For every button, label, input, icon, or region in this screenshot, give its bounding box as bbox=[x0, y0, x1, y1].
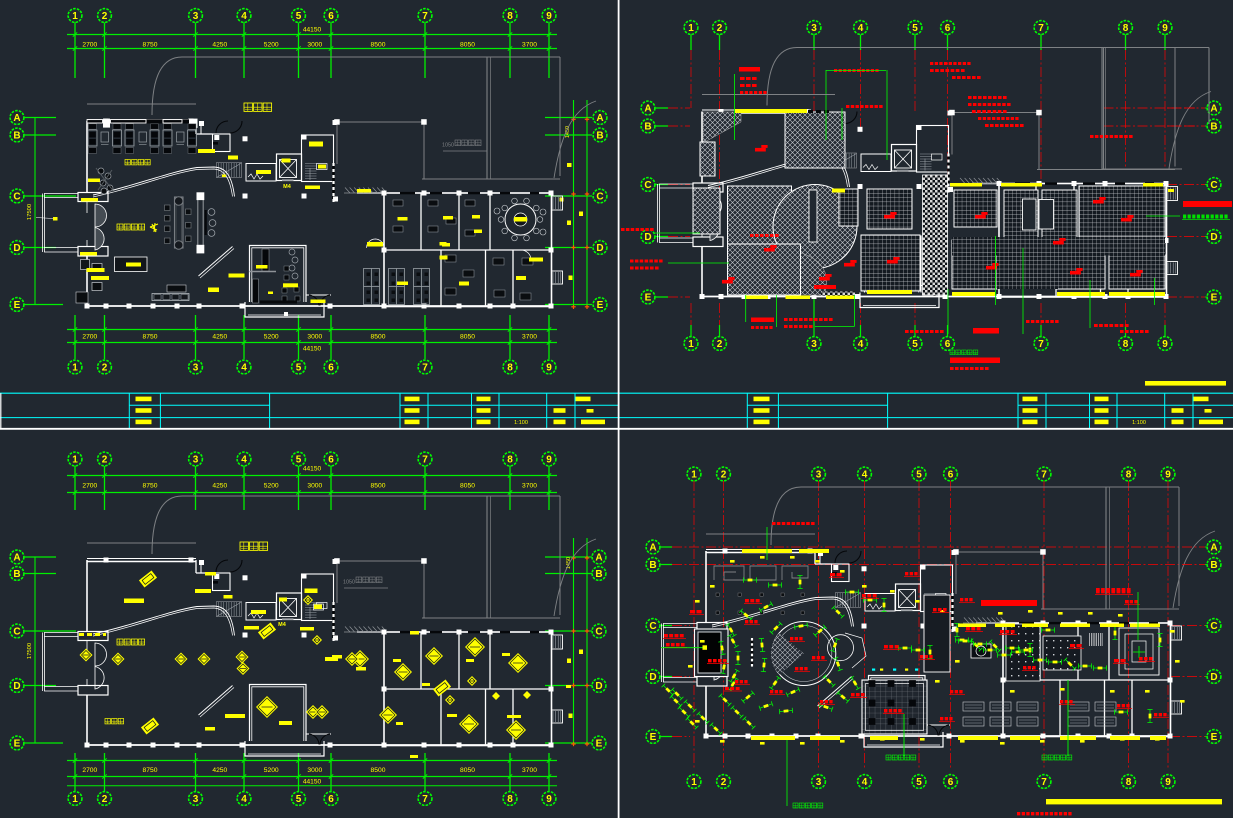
svg-text:D: D bbox=[1210, 232, 1217, 243]
svg-text:5200: 5200 bbox=[264, 483, 279, 490]
svg-text:C: C bbox=[595, 626, 602, 637]
svg-text:2: 2 bbox=[717, 23, 723, 34]
svg-text:B: B bbox=[596, 130, 603, 141]
svg-text:1: 1 bbox=[688, 23, 694, 34]
svg-text:A: A bbox=[13, 113, 20, 124]
svg-text:3: 3 bbox=[811, 339, 817, 350]
svg-text:B: B bbox=[1210, 121, 1217, 132]
svg-text:5: 5 bbox=[296, 11, 302, 22]
svg-text:7: 7 bbox=[1038, 23, 1044, 34]
svg-text:5: 5 bbox=[916, 777, 922, 788]
svg-text:7: 7 bbox=[422, 454, 428, 465]
svg-text:5200: 5200 bbox=[264, 767, 279, 774]
svg-text:8500: 8500 bbox=[371, 334, 386, 341]
svg-text:9: 9 bbox=[546, 11, 552, 22]
svg-text:3: 3 bbox=[193, 11, 199, 22]
svg-text:7: 7 bbox=[1041, 777, 1047, 788]
svg-text:D: D bbox=[595, 681, 602, 692]
svg-text:3700: 3700 bbox=[522, 767, 537, 774]
svg-text:4250: 4250 bbox=[212, 483, 227, 490]
svg-text:3: 3 bbox=[193, 454, 199, 465]
svg-text:E: E bbox=[14, 738, 21, 749]
svg-text:5: 5 bbox=[296, 454, 302, 465]
svg-text:B: B bbox=[595, 569, 602, 580]
svg-text:6: 6 bbox=[945, 339, 951, 350]
svg-text:E: E bbox=[645, 292, 652, 303]
svg-text:1: 1 bbox=[688, 339, 694, 350]
svg-text:A: A bbox=[13, 552, 20, 563]
svg-text:E: E bbox=[1211, 292, 1218, 303]
svg-text:9: 9 bbox=[1162, 339, 1168, 350]
svg-text:2: 2 bbox=[721, 777, 727, 788]
svg-text:C: C bbox=[1210, 621, 1217, 632]
svg-text:17500: 17500 bbox=[27, 204, 33, 220]
svg-text:7: 7 bbox=[422, 11, 428, 22]
svg-text:44150: 44150 bbox=[303, 466, 322, 473]
svg-text:5200: 5200 bbox=[264, 42, 279, 49]
svg-text:3000: 3000 bbox=[307, 42, 322, 49]
svg-text:D: D bbox=[644, 232, 651, 243]
svg-text:C: C bbox=[1210, 180, 1217, 191]
svg-text:A: A bbox=[596, 113, 603, 124]
svg-text:3: 3 bbox=[816, 469, 822, 480]
svg-text:5200: 5200 bbox=[264, 334, 279, 341]
svg-text:8750: 8750 bbox=[143, 334, 158, 341]
svg-text:A: A bbox=[649, 542, 656, 553]
svg-text:B: B bbox=[1210, 560, 1217, 571]
svg-text:8: 8 bbox=[1126, 469, 1132, 480]
svg-text:2700: 2700 bbox=[82, 483, 97, 490]
svg-text:C: C bbox=[649, 621, 656, 632]
svg-text:M4: M4 bbox=[278, 622, 287, 628]
svg-text:3: 3 bbox=[816, 777, 822, 788]
svg-text:E: E bbox=[14, 300, 21, 311]
svg-text:44150: 44150 bbox=[303, 346, 322, 353]
svg-text:6: 6 bbox=[948, 777, 954, 788]
svg-text:6: 6 bbox=[328, 794, 334, 805]
svg-text:1: 1 bbox=[72, 362, 78, 373]
svg-text:2: 2 bbox=[102, 11, 108, 22]
svg-text:4: 4 bbox=[858, 339, 864, 350]
svg-text:8500: 8500 bbox=[371, 767, 386, 774]
svg-text:E: E bbox=[650, 732, 657, 743]
svg-text:4: 4 bbox=[241, 362, 247, 373]
svg-text:2: 2 bbox=[102, 362, 108, 373]
svg-text:3000: 3000 bbox=[307, 483, 322, 490]
svg-text:2700: 2700 bbox=[82, 334, 97, 341]
svg-text:D: D bbox=[13, 681, 20, 692]
svg-text:6: 6 bbox=[328, 454, 334, 465]
svg-text:4: 4 bbox=[241, 11, 247, 22]
svg-text:3: 3 bbox=[193, 362, 199, 373]
svg-text:1: 1 bbox=[691, 469, 697, 480]
svg-text:C: C bbox=[596, 191, 603, 202]
svg-text:B: B bbox=[13, 569, 20, 580]
svg-text:1: 1 bbox=[72, 794, 78, 805]
svg-text:9: 9 bbox=[1162, 23, 1168, 34]
svg-text:E: E bbox=[1211, 732, 1218, 743]
svg-text:E: E bbox=[597, 300, 604, 311]
svg-text:1:100: 1:100 bbox=[1132, 420, 1146, 426]
svg-text:A: A bbox=[595, 552, 602, 563]
svg-text:C: C bbox=[13, 191, 20, 202]
svg-text:44150: 44150 bbox=[303, 27, 322, 34]
svg-text:4250: 4250 bbox=[212, 767, 227, 774]
svg-text:6: 6 bbox=[328, 362, 334, 373]
svg-text:4: 4 bbox=[862, 469, 868, 480]
svg-text:8750: 8750 bbox=[143, 767, 158, 774]
svg-text:4250: 4250 bbox=[212, 334, 227, 341]
svg-text:3000: 3000 bbox=[307, 334, 322, 341]
svg-text:7: 7 bbox=[422, 362, 428, 373]
svg-text:6: 6 bbox=[945, 23, 951, 34]
svg-text:8: 8 bbox=[507, 362, 513, 373]
svg-text:A: A bbox=[644, 103, 651, 114]
svg-text:2: 2 bbox=[102, 794, 108, 805]
svg-text:M4: M4 bbox=[283, 184, 292, 190]
svg-text:2: 2 bbox=[102, 454, 108, 465]
svg-text:3: 3 bbox=[193, 794, 199, 805]
svg-text:8500: 8500 bbox=[371, 483, 386, 490]
svg-text:8050: 8050 bbox=[460, 334, 475, 341]
svg-text:3700: 3700 bbox=[522, 334, 537, 341]
svg-text:9: 9 bbox=[1165, 469, 1171, 480]
svg-text:8050: 8050 bbox=[460, 42, 475, 49]
svg-text:9: 9 bbox=[546, 362, 552, 373]
svg-text:1:100: 1:100 bbox=[514, 420, 528, 426]
svg-text:1050: 1050 bbox=[442, 143, 454, 149]
svg-text:D: D bbox=[13, 243, 20, 254]
svg-text:1: 1 bbox=[72, 454, 78, 465]
svg-text:D: D bbox=[649, 672, 656, 683]
svg-text:4: 4 bbox=[241, 794, 247, 805]
svg-text:3000: 3000 bbox=[307, 767, 322, 774]
svg-text:3700: 3700 bbox=[522, 483, 537, 490]
svg-text:4: 4 bbox=[241, 454, 247, 465]
svg-text:7: 7 bbox=[1041, 469, 1047, 480]
svg-text:9: 9 bbox=[1165, 777, 1171, 788]
svg-text:A: A bbox=[1210, 542, 1217, 553]
svg-text:1: 1 bbox=[691, 777, 697, 788]
svg-text:5: 5 bbox=[916, 469, 922, 480]
svg-text:8: 8 bbox=[1126, 777, 1132, 788]
svg-text:5: 5 bbox=[912, 23, 918, 34]
svg-text:8: 8 bbox=[1123, 339, 1129, 350]
svg-text:6: 6 bbox=[328, 11, 334, 22]
svg-text:8050: 8050 bbox=[460, 483, 475, 490]
svg-text:8500: 8500 bbox=[371, 42, 386, 49]
svg-text:D: D bbox=[596, 243, 603, 254]
svg-text:B: B bbox=[649, 560, 656, 571]
svg-text:2700: 2700 bbox=[82, 767, 97, 774]
svg-text:2: 2 bbox=[717, 339, 723, 350]
svg-text:8: 8 bbox=[1123, 23, 1129, 34]
svg-text:4: 4 bbox=[858, 23, 864, 34]
svg-text:C: C bbox=[644, 180, 651, 191]
svg-text:A: A bbox=[1210, 103, 1217, 114]
svg-text:5: 5 bbox=[296, 362, 302, 373]
svg-text:17500: 17500 bbox=[27, 643, 33, 659]
svg-text:44150: 44150 bbox=[303, 779, 322, 786]
svg-text:D: D bbox=[1210, 672, 1217, 683]
svg-text:8750: 8750 bbox=[143, 483, 158, 490]
svg-text:8: 8 bbox=[507, 794, 513, 805]
svg-text:8: 8 bbox=[507, 11, 513, 22]
svg-text:3: 3 bbox=[811, 23, 817, 34]
svg-text:5: 5 bbox=[296, 794, 302, 805]
svg-text:1: 1 bbox=[72, 11, 78, 22]
svg-text:1050: 1050 bbox=[343, 580, 355, 586]
svg-text:2700: 2700 bbox=[82, 42, 97, 49]
svg-text:C: C bbox=[13, 626, 20, 637]
svg-text:7: 7 bbox=[422, 794, 428, 805]
svg-text:4250: 4250 bbox=[212, 42, 227, 49]
svg-text:2: 2 bbox=[721, 469, 727, 480]
svg-text:B: B bbox=[644, 121, 651, 132]
svg-text:B: B bbox=[13, 130, 20, 141]
svg-text:9: 9 bbox=[546, 794, 552, 805]
svg-text:E: E bbox=[596, 738, 603, 749]
svg-text:3700: 3700 bbox=[522, 42, 537, 49]
svg-text:6: 6 bbox=[948, 469, 954, 480]
svg-text:7: 7 bbox=[1038, 339, 1044, 350]
svg-text:5: 5 bbox=[912, 339, 918, 350]
svg-text:8750: 8750 bbox=[143, 42, 158, 49]
svg-text:9: 9 bbox=[546, 454, 552, 465]
svg-text:8: 8 bbox=[507, 454, 513, 465]
svg-text:4: 4 bbox=[862, 777, 868, 788]
svg-text:8050: 8050 bbox=[460, 767, 475, 774]
